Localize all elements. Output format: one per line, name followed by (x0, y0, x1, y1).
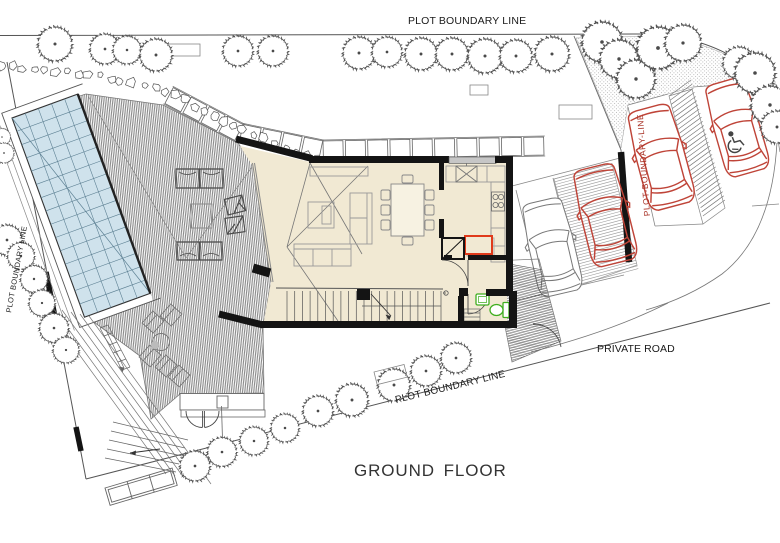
svg-text:PRIVATE ROAD: PRIVATE ROAD (597, 343, 675, 355)
svg-text:PLOT BOUNDARY LINE: PLOT BOUNDARY LINE (408, 15, 526, 27)
svg-text:GROUND FLOOR: GROUND FLOOR (354, 461, 507, 480)
